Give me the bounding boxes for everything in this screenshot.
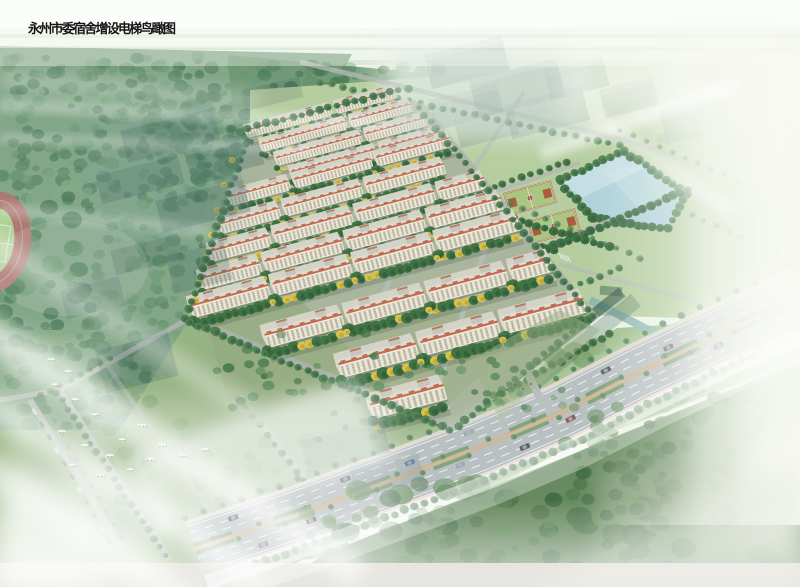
svg-text:永州市委宿舍增设电梯鸟瞰图: 永州市委宿舍增设电梯鸟瞰图 xyxy=(27,21,176,36)
